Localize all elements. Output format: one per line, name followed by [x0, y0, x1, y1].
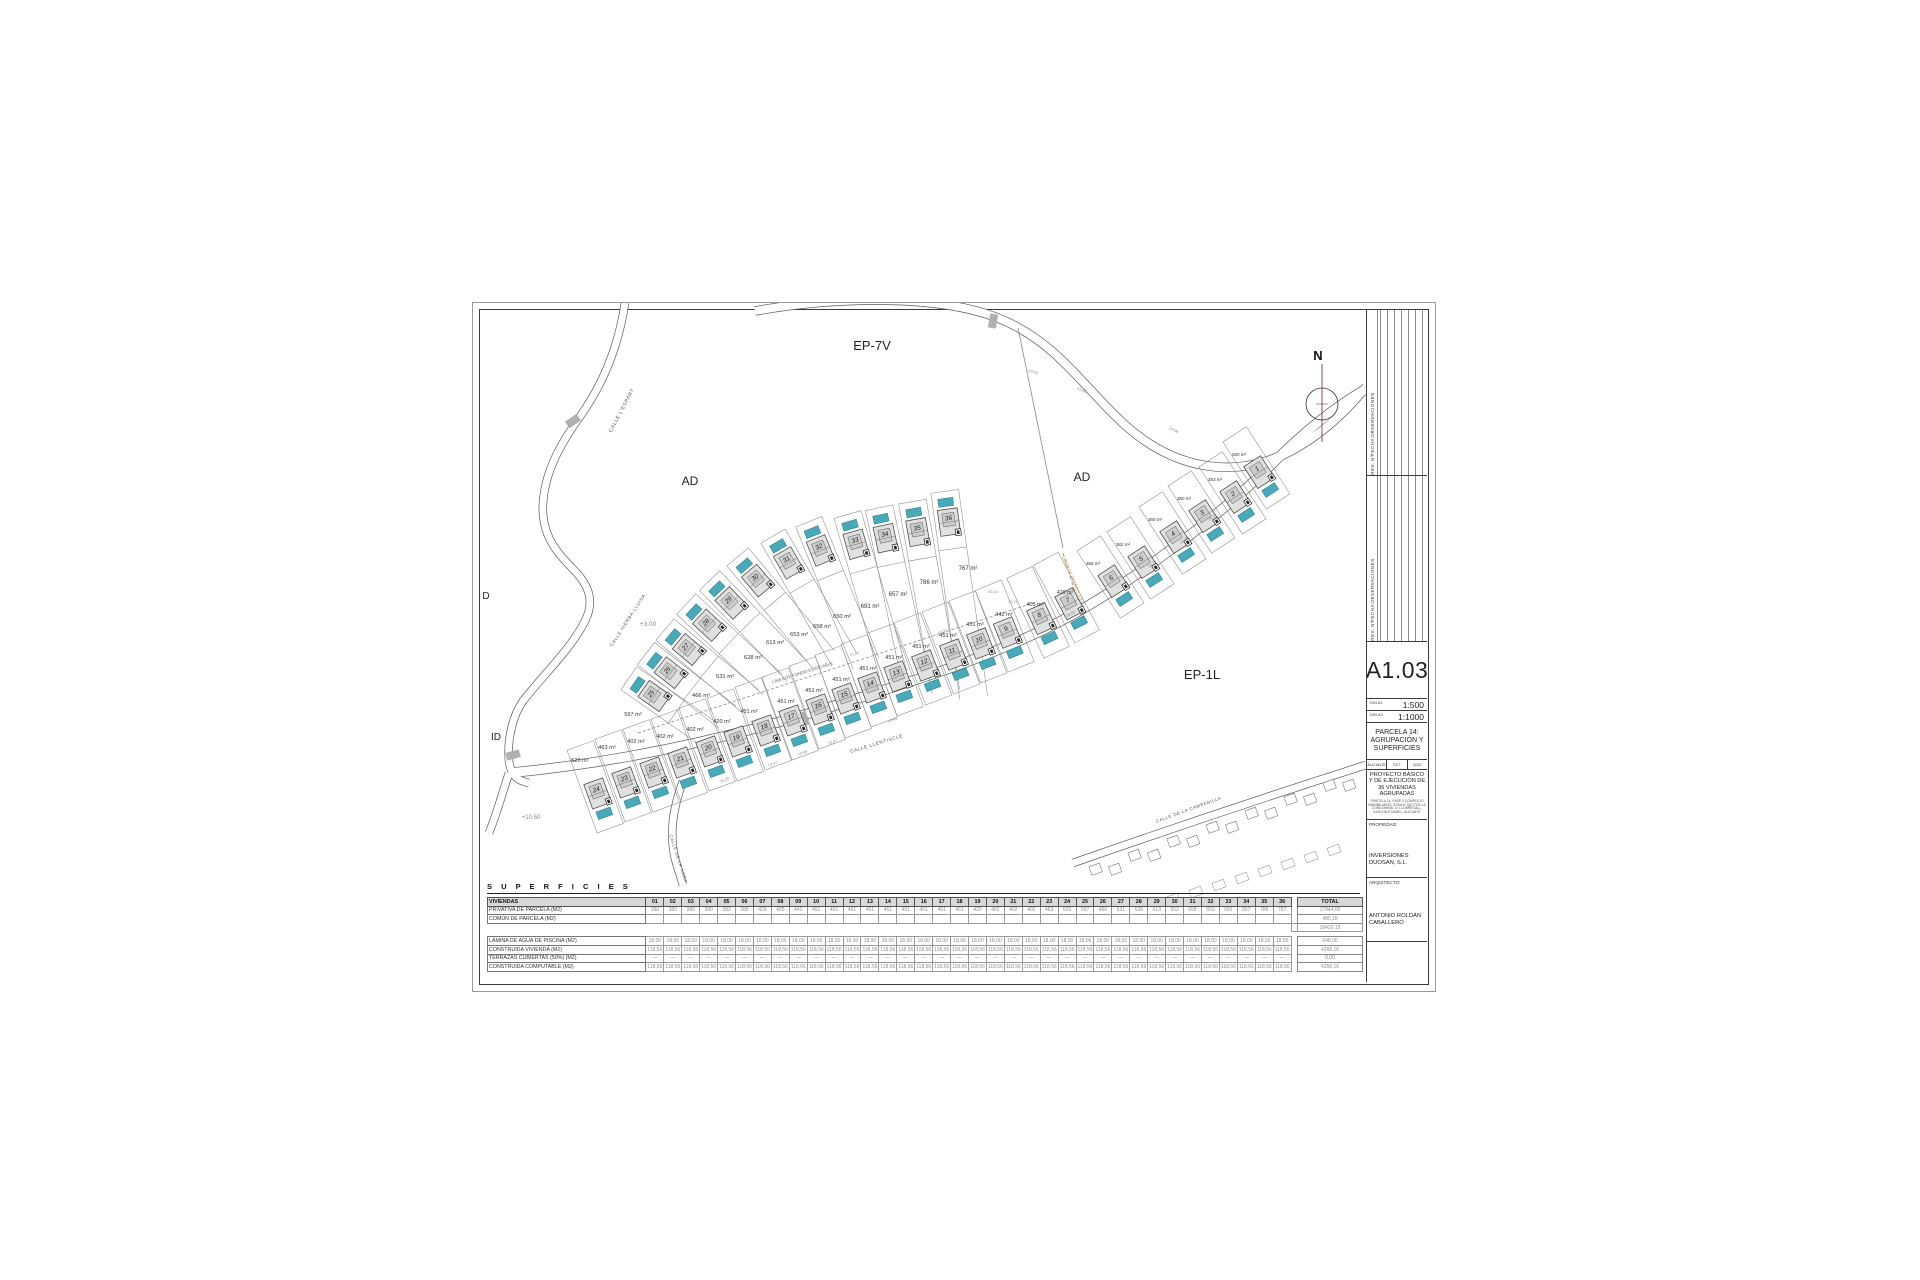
- column-header: 26: [1094, 898, 1112, 907]
- value-cell: 118,56: [1022, 963, 1040, 972]
- drawing-title: PARCELA 14: AGRUPACIÓN Y SUPERFICIES: [1367, 723, 1427, 760]
- value-cell: [1273, 915, 1291, 924]
- owner-box: PROPIEDAD: INVERSIONES DUOSAN, S.L.: [1367, 820, 1427, 878]
- value-cell: 380: [700, 906, 718, 915]
- value-cell: 18,00: [664, 937, 682, 946]
- value-cell: 118,56: [986, 945, 1004, 954]
- value-cell: [1040, 915, 1058, 924]
- existing-building: [1128, 849, 1141, 861]
- row-label: LÁMINA DE AGUA DE PISCINA (M2): [488, 937, 646, 946]
- plan-text: 13,47: [767, 759, 779, 767]
- value-cell: [1004, 915, 1022, 924]
- plan-text: 657 m²: [889, 592, 908, 598]
- value-cell: 118,56: [879, 963, 897, 972]
- column-header: 15: [897, 898, 915, 907]
- plan-text: ID: [491, 732, 501, 743]
- value-cell: 118,56: [1022, 945, 1040, 954]
- value-cell: 118,56: [1237, 945, 1255, 954]
- value-cell: 18,00: [986, 937, 1004, 946]
- value-cell: 118,56: [736, 945, 754, 954]
- value-cell: 118,56: [879, 945, 897, 954]
- plan-text: 531 m²: [716, 674, 734, 680]
- column-header: 01: [646, 898, 664, 907]
- plan-text: 383 m²: [1208, 477, 1223, 482]
- column-header: 35: [1255, 898, 1273, 907]
- empty-box: [1367, 942, 1427, 982]
- value-cell: [1112, 915, 1130, 924]
- value-cell: 463: [1040, 906, 1058, 915]
- value-cell: [933, 915, 951, 924]
- column-header: 08: [771, 898, 789, 907]
- column-header: 06: [736, 898, 754, 907]
- value-cell: 531: [1112, 906, 1130, 915]
- plan-text: 390 m²: [1232, 452, 1247, 457]
- value-cell: 118,56: [1076, 945, 1094, 954]
- value-cell: —: [682, 954, 700, 963]
- column-header: 20: [986, 898, 1004, 907]
- plan-text: 628 m²: [744, 655, 762, 661]
- value-cell: —: [879, 954, 897, 963]
- row-label: CONSTRUIDA COMPUTABLE (M2): [488, 963, 646, 972]
- value-cell: 18,00: [1148, 937, 1166, 946]
- existing-building: [1245, 807, 1258, 819]
- value-cell: 118,56: [682, 945, 700, 954]
- revision-header-rev: REV. Nº: [1370, 455, 1375, 475]
- plan-text: 451 m²: [966, 622, 984, 628]
- value-cell: 18,00: [771, 937, 789, 946]
- value-cell: 118,56: [1273, 945, 1291, 954]
- value-cell: —: [753, 954, 771, 963]
- value-cell: 118,56: [986, 963, 1004, 972]
- value-cell: 18,00: [700, 937, 718, 946]
- value-cell: 18,00: [933, 937, 951, 946]
- plan-text: 420 m²: [713, 719, 731, 725]
- plan-text: CALLE LLENTISCLE: [850, 733, 904, 755]
- value-cell: 118,56: [1148, 963, 1166, 972]
- plan-text: 402 m²: [656, 734, 674, 740]
- value-cell: 118,56: [1148, 945, 1166, 954]
- total-header: TOTAL: [1298, 898, 1363, 907]
- value-cell: 18,00: [682, 937, 700, 946]
- column-header: 33: [1219, 898, 1237, 907]
- value-cell: —: [1130, 954, 1148, 963]
- value-cell: [807, 915, 825, 924]
- value-cell: 402: [986, 906, 1004, 915]
- value-cell: [1148, 915, 1166, 924]
- project-box: PROYECTO BÁSICO Y DE EJECUCIÓN DE 36 VIV…: [1367, 770, 1427, 820]
- column-header: 32: [1202, 898, 1220, 907]
- value-cell: 118,56: [807, 945, 825, 954]
- value-cell: 451: [825, 906, 843, 915]
- value-cell: [825, 915, 843, 924]
- value-cell: 118,56: [1112, 963, 1130, 972]
- value-cell: 118,56: [933, 963, 951, 972]
- total-value: 17944,00: [1298, 906, 1363, 915]
- value-cell: —: [951, 954, 969, 963]
- plan-text: 451 m²: [859, 666, 877, 672]
- plan-text: 451 m²: [805, 688, 823, 694]
- value-cell: [969, 915, 987, 924]
- value-cell: 18,00: [753, 937, 771, 946]
- architect-box: ARQUITECTO: ANTONIO ROLDÁN CABALLERO: [1367, 878, 1427, 942]
- value-cell: 786: [1255, 906, 1273, 915]
- existing-building: [1281, 858, 1295, 870]
- value-cell: —: [1058, 954, 1076, 963]
- plan-text: 402 m²: [686, 727, 704, 733]
- plan-text: AD: [1074, 470, 1091, 484]
- value-cell: [753, 915, 771, 924]
- plan-text: +10.50: [522, 815, 541, 821]
- value-cell: 118,56: [897, 945, 915, 954]
- value-cell: 118,56: [825, 945, 843, 954]
- value-cell: —: [897, 954, 915, 963]
- value-cell: 118,56: [1184, 945, 1202, 954]
- value-cell: 118,56: [933, 945, 951, 954]
- value-cell: 451: [807, 906, 825, 915]
- value-cell: —: [825, 954, 843, 963]
- existing-building: [1327, 844, 1341, 856]
- value-cell: 18,00: [1184, 937, 1202, 946]
- plan-text: 20,24: [988, 589, 999, 594]
- value-cell: 118,56: [682, 963, 700, 972]
- column-header: 36: [1273, 898, 1291, 907]
- plan-text: 451 m²: [912, 644, 930, 650]
- value-cell: —: [1219, 954, 1237, 963]
- plan-text: 15,25: [719, 775, 731, 783]
- value-cell: [1094, 915, 1112, 924]
- plan-text: +3.00: [640, 621, 657, 628]
- value-cell: 118,56: [718, 945, 736, 954]
- table-cell: [488, 923, 646, 932]
- revision-table-2: OBSERVACIONES FECHA REV. Nº: [1367, 476, 1427, 642]
- value-cell: 18,00: [736, 937, 754, 946]
- existing-building: [1206, 821, 1219, 833]
- value-cell: [843, 915, 861, 924]
- value-cell: 118,56: [700, 945, 718, 954]
- value-cell: 118,56: [1202, 963, 1220, 972]
- project-title: PROYECTO BÁSICO Y DE EJECUCIÓN DE 36 VIV…: [1368, 772, 1426, 798]
- plan-text: 16,02: [1028, 368, 1040, 376]
- value-cell: —: [986, 954, 1004, 963]
- value-cell: 18,00: [1202, 937, 1220, 946]
- value-cell: [1130, 915, 1148, 924]
- value-cell: 451: [843, 906, 861, 915]
- value-cell: 653: [1166, 906, 1184, 915]
- value-cell: 451: [951, 906, 969, 915]
- plot-32: 32: [796, 517, 879, 669]
- value-cell: —: [915, 954, 933, 963]
- plan-text: AD: [682, 474, 699, 488]
- existing-building: [1225, 821, 1238, 833]
- value-cell: 118,56: [1058, 963, 1076, 972]
- owner-name: INVERSIONES DUOSAN, S.L.: [1369, 853, 1425, 866]
- row-label: TERRAZAS CUBIERTAS (50%) (M2): [488, 954, 646, 963]
- plan-text: 650 m²: [833, 614, 851, 620]
- value-cell: 383: [664, 906, 682, 915]
- value-cell: 18,00: [1237, 937, 1255, 946]
- column-header: 34: [1237, 898, 1255, 907]
- road-surface: [755, 303, 1366, 467]
- value-cell: 118,56: [736, 963, 754, 972]
- plan-text: 613 m²: [766, 640, 784, 646]
- plan-text: 466 m²: [692, 693, 710, 699]
- plan-text: 463 m²: [598, 745, 616, 751]
- value-cell: 628: [1130, 906, 1148, 915]
- road-casing: [755, 303, 1366, 467]
- column-header: 23: [1040, 898, 1058, 907]
- value-cell: 18,00: [789, 937, 807, 946]
- value-cell: 118,56: [1219, 963, 1237, 972]
- meta-row: ALICANTE OCT. 2022: [1367, 760, 1427, 770]
- value-cell: 118,56: [771, 945, 789, 954]
- column-header: 16: [915, 898, 933, 907]
- value-cell: 118,56: [1094, 945, 1112, 954]
- column-header: 31: [1184, 898, 1202, 907]
- value-cell: 18,00: [969, 937, 987, 946]
- value-cell: —: [1202, 954, 1220, 963]
- value-cell: 118,56: [789, 963, 807, 972]
- value-cell: [1058, 915, 1076, 924]
- superficies-title: S U P E R F I C I E S: [487, 882, 1360, 894]
- value-cell: 118,56: [1166, 963, 1184, 972]
- column-header: 10: [807, 898, 825, 907]
- existing-building: [1258, 865, 1272, 877]
- plan-text: 388 m²: [1086, 561, 1101, 566]
- value-cell: [1076, 915, 1094, 924]
- value-cell: 18,00: [1040, 937, 1058, 946]
- value-cell: 118,56: [1202, 945, 1220, 954]
- value-cell: —: [969, 954, 987, 963]
- value-cell: 118,56: [969, 945, 987, 954]
- value-cell: 118,56: [951, 963, 969, 972]
- road-surface: [489, 773, 509, 833]
- revision-table: OBSERVACIONES FECHA REV. Nº: [1367, 310, 1427, 476]
- value-cell: 18,00: [1273, 937, 1291, 946]
- value-cell: 118,56: [1255, 963, 1273, 972]
- revision-header-observaciones: OBSERVACIONES: [1370, 310, 1375, 438]
- plan-text: EP-7V: [853, 338, 891, 353]
- value-cell: 658: [1184, 906, 1202, 915]
- value-cell: 118,56: [897, 963, 915, 972]
- plan-text: 786 m²: [920, 580, 939, 586]
- project-address: PARCELA 14, FASE 3 COMPLEJO INMOBILIARIO…: [1368, 800, 1426, 816]
- road-surface: [1073, 765, 1366, 863]
- value-cell: 767: [1273, 906, 1291, 915]
- value-cell: —: [1148, 954, 1166, 963]
- value-cell: 118,56: [915, 963, 933, 972]
- plan-text: 13,47: [827, 737, 839, 745]
- value-cell: 613: [1148, 906, 1166, 915]
- existing-building: [1167, 835, 1180, 847]
- existing-building: [1089, 863, 1102, 875]
- total-value: 4268,16: [1298, 963, 1363, 972]
- total-value: 18429,18: [1298, 923, 1363, 932]
- value-cell: 382: [718, 906, 736, 915]
- value-cell: [986, 915, 1004, 924]
- value-cell: [771, 915, 789, 924]
- plan-text: 451 m²: [740, 709, 758, 715]
- value-cell: [897, 915, 915, 924]
- column-header: 30: [1166, 898, 1184, 907]
- value-cell: 18,00: [951, 937, 969, 946]
- value-cell: 18,00: [1130, 937, 1148, 946]
- value-cell: 118,56: [1273, 963, 1291, 972]
- value-cell: [1237, 915, 1255, 924]
- value-cell: 118,56: [1112, 945, 1130, 954]
- column-header: 21: [1004, 898, 1022, 907]
- value-cell: 118,56: [1040, 963, 1058, 972]
- existing-building: [1147, 849, 1160, 861]
- value-cell: 388: [736, 906, 754, 915]
- value-cell: 118,56: [664, 963, 682, 972]
- value-cell: 118,56: [718, 963, 736, 972]
- table-corner-header: VIVIENDAS: [488, 898, 646, 907]
- column-header: 29: [1148, 898, 1166, 907]
- value-cell: 466: [1094, 906, 1112, 915]
- value-cell: 18,00: [825, 937, 843, 946]
- row-label: CONSTRUIDA VIVIENDA (M2): [488, 945, 646, 954]
- value-cell: 18,00: [1004, 937, 1022, 946]
- plan-text: 691 m²: [861, 604, 880, 610]
- value-cell: 657: [1237, 906, 1255, 915]
- existing-building: [1264, 807, 1277, 819]
- road-surface: [509, 303, 625, 783]
- value-cell: 18,00: [1166, 937, 1184, 946]
- plan-text: 402 m²: [627, 739, 645, 745]
- plan-text: 21,81: [849, 649, 861, 657]
- value-cell: 18,00: [1255, 937, 1273, 946]
- value-cell: 18,00: [897, 937, 915, 946]
- value-cell: 118,56: [915, 945, 933, 954]
- value-cell: 118,56: [1130, 963, 1148, 972]
- column-header: 27: [1112, 898, 1130, 907]
- value-cell: —: [700, 954, 718, 963]
- total-value: 4268,16: [1298, 945, 1363, 954]
- value-cell: 451: [915, 906, 933, 915]
- plan-text: 405 m²: [1026, 602, 1044, 608]
- value-cell: —: [1004, 954, 1022, 963]
- column-header: 19: [969, 898, 987, 907]
- column-header: 05: [718, 898, 736, 907]
- value-cell: 18,00: [1219, 937, 1237, 946]
- value-cell: —: [843, 954, 861, 963]
- sheet-number: A1.03: [1367, 642, 1427, 699]
- total-value: 485,18: [1298, 915, 1363, 924]
- plan-text: 380 m²: [1177, 496, 1192, 501]
- column-header: 24: [1058, 898, 1076, 907]
- value-cell: 118,56: [664, 945, 682, 954]
- value-cell: 380: [682, 906, 700, 915]
- value-cell: 118,56: [825, 963, 843, 972]
- value-cell: —: [736, 954, 754, 963]
- value-cell: [646, 915, 664, 924]
- existing-building: [1186, 835, 1199, 847]
- value-cell: 118,56: [1094, 963, 1112, 972]
- column-header: 22: [1022, 898, 1040, 907]
- plan-text: 429 m²: [1057, 590, 1073, 596]
- value-cell: 402: [1004, 906, 1022, 915]
- column-header: 13: [861, 898, 879, 907]
- value-cell: 405: [771, 906, 789, 915]
- value-cell: 451: [897, 906, 915, 915]
- column-header: 04: [700, 898, 718, 907]
- value-cell: 118,56: [700, 963, 718, 972]
- column-header: 17: [933, 898, 951, 907]
- plan-text: 380 m²: [1148, 517, 1163, 522]
- value-cell: [682, 915, 700, 924]
- value-cell: 118,56: [1237, 963, 1255, 972]
- total-value: 648,00: [1298, 937, 1363, 946]
- plan-text: 451 m²: [832, 677, 850, 683]
- value-cell: 118,56: [789, 945, 807, 954]
- column-header: 11: [825, 898, 843, 907]
- existing-building: [1108, 863, 1121, 875]
- value-cell: 520: [1058, 906, 1076, 915]
- page: { "sheet": { "code": "A1.03", "scales": …: [0, 0, 1920, 1280]
- value-cell: —: [646, 954, 664, 963]
- value-cell: 18,00: [879, 937, 897, 946]
- superficies-grid: VIVIENDAS0102030405060708091011121314151…: [487, 897, 1363, 972]
- value-cell: [1219, 915, 1237, 924]
- value-cell: [789, 915, 807, 924]
- value-cell: 118,56: [951, 945, 969, 954]
- value-cell: 118,56: [1058, 945, 1076, 954]
- plan-text: CALLE L'ESPART: [608, 388, 636, 434]
- value-cell: 118,56: [753, 963, 771, 972]
- row-label: COMÚN DE PARCELA (M2): [488, 915, 646, 924]
- value-cell: 18,00: [861, 937, 879, 946]
- plan-text: 520 m²: [571, 758, 589, 764]
- value-cell: [700, 915, 718, 924]
- value-cell: 118,56: [969, 963, 987, 972]
- total-value: 0,00: [1298, 954, 1363, 963]
- value-cell: —: [1022, 954, 1040, 963]
- value-cell: 442: [789, 906, 807, 915]
- value-cell: 18,00: [1076, 937, 1094, 946]
- svg-text:36: 36: [944, 515, 953, 523]
- value-cell: 118,56: [1076, 963, 1094, 972]
- value-cell: —: [1184, 954, 1202, 963]
- value-cell: 420: [969, 906, 987, 915]
- plan-text: 451 m²: [777, 699, 795, 705]
- value-cell: [1022, 915, 1040, 924]
- value-cell: —: [807, 954, 825, 963]
- value-cell: 118,56: [1040, 945, 1058, 954]
- value-cell: 118,56: [1184, 963, 1202, 972]
- value-cell: 429: [753, 906, 771, 915]
- plan-text: 451 m²: [885, 655, 903, 661]
- value-cell: 402: [1022, 906, 1040, 915]
- site-plan: 2526272829303132333435362423222120191817…: [473, 303, 1366, 983]
- value-cell: —: [1255, 954, 1273, 963]
- value-cell: [915, 915, 933, 924]
- value-cell: 451: [933, 906, 951, 915]
- value-cell: 18,00: [807, 937, 825, 946]
- value-cell: —: [1237, 954, 1255, 963]
- value-cell: [718, 915, 736, 924]
- value-cell: 118,56: [753, 945, 771, 954]
- scale-a3: DIN A3 1:1000: [1367, 711, 1427, 723]
- value-cell: —: [1040, 954, 1058, 963]
- column-header: 18: [951, 898, 969, 907]
- plan-text: N: [1313, 348, 1322, 363]
- value-cell: 118,56: [861, 945, 879, 954]
- value-cell: [861, 915, 879, 924]
- column-header: 28: [1130, 898, 1148, 907]
- value-cell: [879, 915, 897, 924]
- value-cell: 118,56: [843, 963, 861, 972]
- column-header: 02: [664, 898, 682, 907]
